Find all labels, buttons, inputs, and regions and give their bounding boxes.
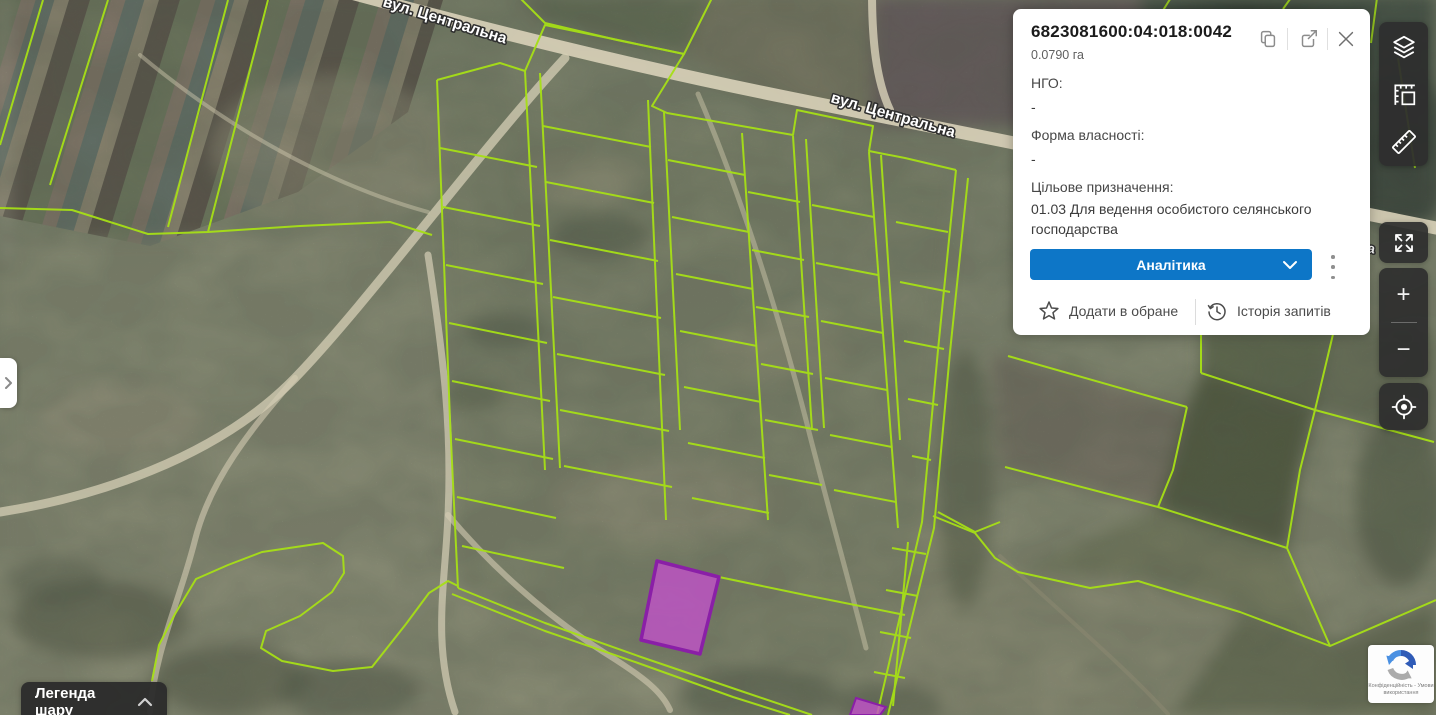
- recaptcha-badge[interactable]: Конфіденційність - Умови використання: [1368, 645, 1434, 703]
- zoom-out-label: −: [1396, 338, 1410, 362]
- copy-button[interactable]: [1255, 26, 1281, 52]
- expand-arrows-icon: [1392, 231, 1416, 255]
- more-options-button[interactable]: [1326, 253, 1340, 281]
- header-divider: [1287, 28, 1288, 50]
- parcel-area: 0.0790 га: [1031, 48, 1084, 62]
- ngo-label: НГО:: [1031, 75, 1063, 91]
- add-to-favorites-button[interactable]: Додати в обране: [1037, 299, 1178, 323]
- zoom-controls: + −: [1379, 268, 1428, 377]
- purpose-label: Цільове призначення:: [1031, 179, 1174, 195]
- query-history-label: Історія запитів: [1237, 303, 1331, 319]
- ruler-icon: [1391, 129, 1417, 155]
- app-window: вул. Центральна вул. Центральна а 682308…: [0, 0, 1436, 715]
- open-external-button[interactable]: [1295, 26, 1321, 52]
- query-history-button[interactable]: Історія запитів: [1205, 299, 1331, 323]
- ownership-label: Форма власності:: [1031, 127, 1145, 143]
- analytics-button[interactable]: Аналітика: [1030, 249, 1312, 280]
- layers-icon: [1391, 33, 1417, 59]
- links-divider: [1195, 299, 1196, 325]
- layers-button[interactable]: [1379, 22, 1428, 70]
- recaptcha-terms-line: використання: [1368, 690, 1433, 697]
- parcel-info-panel: 6823081600:04:018:0042 0.0790 га НГО: - …: [1013, 9, 1370, 335]
- add-to-favorites-label: Додати в обране: [1069, 303, 1178, 319]
- chevron-down-icon: [1282, 260, 1298, 270]
- ownership-value: -: [1031, 149, 1353, 169]
- zoom-in-button[interactable]: +: [1379, 268, 1428, 322]
- fullscreen-button[interactable]: [1379, 222, 1428, 263]
- recaptcha-logo-icon: [1385, 649, 1417, 681]
- locate-icon: [1391, 394, 1417, 420]
- locate-me-button[interactable]: [1379, 383, 1428, 430]
- close-icon: [1335, 28, 1357, 50]
- map-tools-group: [1379, 22, 1428, 166]
- history-clock-icon: [1205, 299, 1229, 323]
- open-external-icon: [1297, 28, 1319, 50]
- purpose-value: 01.03 Для ведення особистого селянського…: [1031, 199, 1353, 239]
- analytics-button-label: Аналітика: [1136, 257, 1205, 273]
- sidebar-expand-tab[interactable]: [0, 358, 17, 408]
- recaptcha-privacy-line: Конфіденційність - Умови: [1368, 683, 1433, 690]
- area-measure-button[interactable]: [1379, 70, 1428, 118]
- chevron-up-icon: [137, 697, 153, 707]
- close-button[interactable]: [1333, 26, 1359, 52]
- ngo-value: -: [1031, 97, 1353, 117]
- copy-icon: [1257, 28, 1279, 50]
- ruler-button[interactable]: [1379, 118, 1428, 166]
- parcel-id: 6823081600:04:018:0042: [1031, 22, 1232, 42]
- layer-legend-label: Легенда шару: [35, 685, 137, 715]
- zoom-out-button[interactable]: −: [1379, 323, 1428, 377]
- star-icon: [1037, 299, 1061, 323]
- header-divider: [1327, 28, 1328, 50]
- area-measure-icon: [1391, 81, 1417, 107]
- chevron-right-icon: [4, 376, 13, 390]
- layer-legend-button[interactable]: Легенда шару: [21, 682, 167, 715]
- zoom-in-label: +: [1396, 283, 1410, 307]
